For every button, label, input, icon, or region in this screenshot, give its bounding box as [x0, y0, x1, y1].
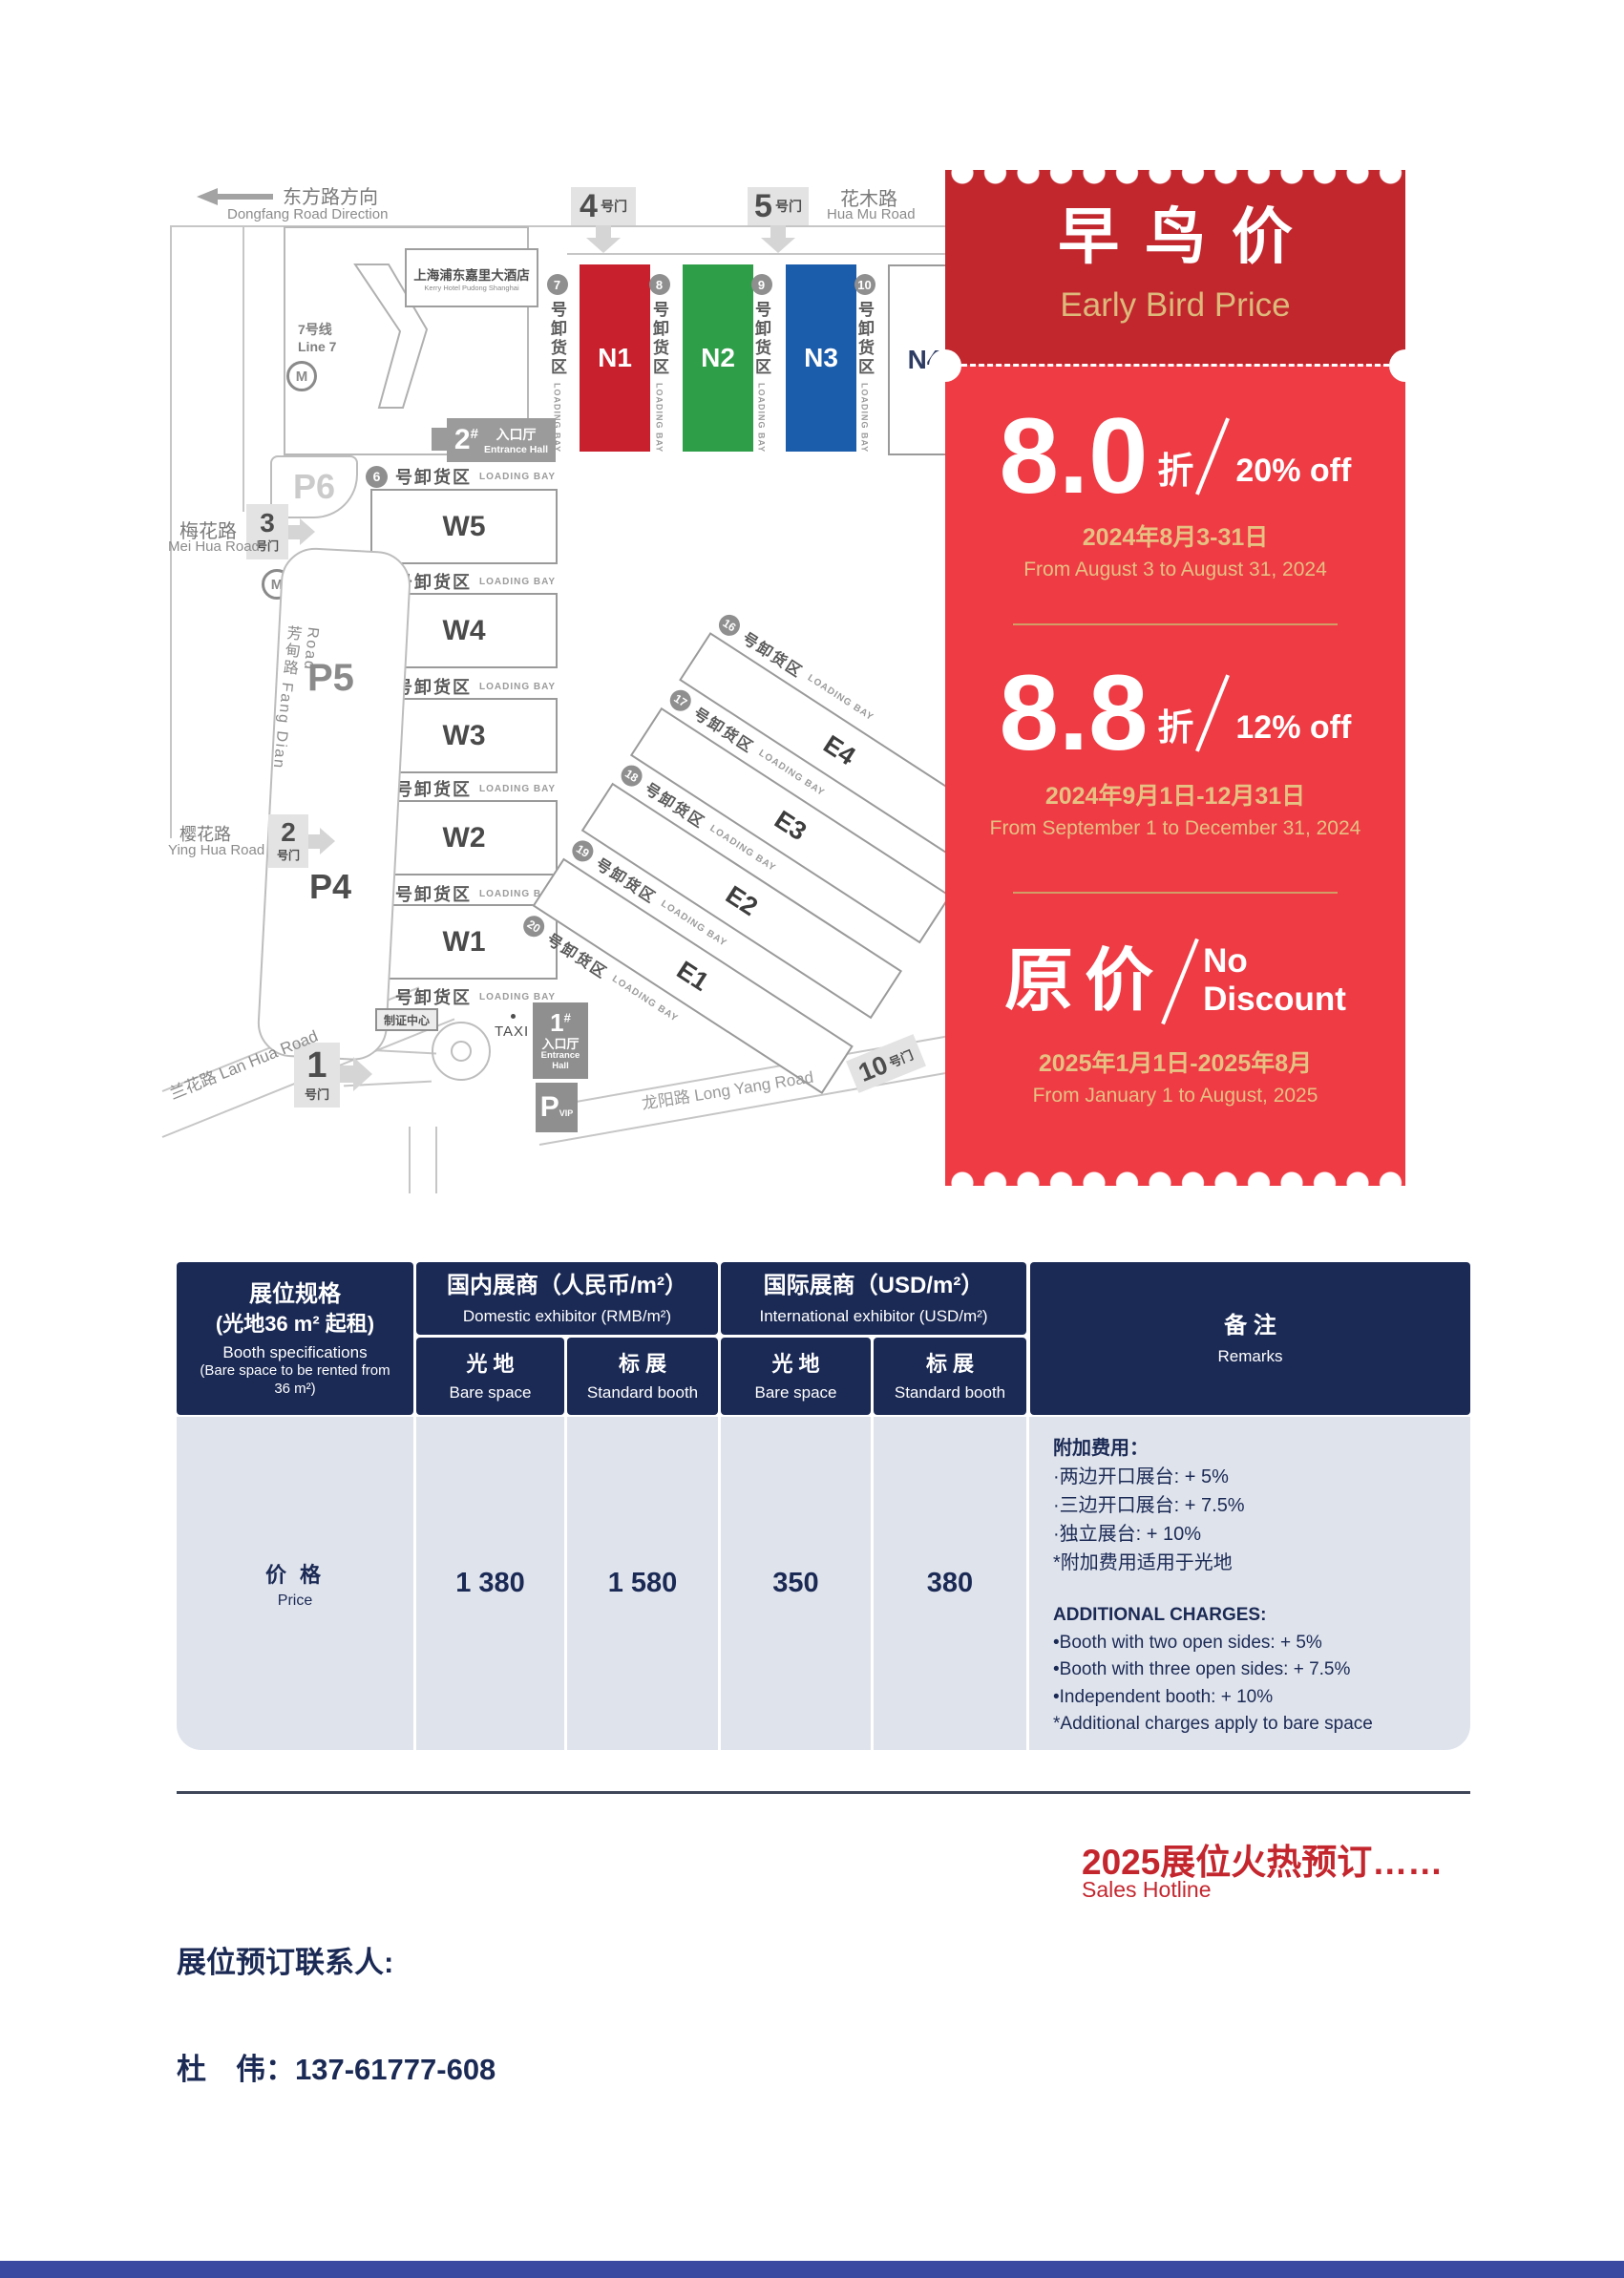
entrance-2-label-en: Entrance Hall: [484, 444, 548, 455]
remarks-header-en: Remarks: [1217, 1346, 1282, 1366]
remarks-cn-item: *附加费用适用于光地: [1053, 1549, 1454, 1577]
gate-1-number: 1: [306, 1047, 327, 1084]
bay-6-label-en: LOADING BAY: [479, 472, 556, 482]
loading-bay-8: 8 号卸货区 LOADING BAY: [647, 274, 671, 453]
price-international-bare: 350: [721, 1417, 871, 1750]
hotel-name-en: Kerry Hotel Pudong Shanghai: [424, 284, 518, 292]
hall-e4-label: E4: [818, 729, 861, 771]
tier-1-rate-suffix: 折: [1157, 441, 1193, 494]
tier-2-rate-suffix: 折: [1157, 698, 1193, 750]
bay-10-badge: 10: [854, 274, 875, 295]
hotel-label-box: 上海浦东嘉里大酒店 Kerry Hotel Pudong Shanghai: [405, 248, 538, 307]
hall-w3-label: W3: [443, 720, 486, 752]
gate-5: 5 号门: [748, 187, 809, 225]
bay-17-badge: 17: [666, 686, 695, 715]
hall-n2: N2: [683, 264, 753, 452]
ticket-title-cn: 早鸟价: [945, 170, 1431, 267]
price-international-standard: 380: [874, 1417, 1026, 1750]
gate-4-arrow-icon: [586, 238, 621, 253]
tier-1: 8.0 折 20% off 2024年8月3-31日 From August 3…: [945, 365, 1405, 581]
parking-vip-p: P: [540, 1091, 559, 1124]
entrance-hall-1: 1# 入口厅 Entrance Hall: [533, 1002, 588, 1079]
tier-2-date-en: From September 1 to December 31, 2024: [945, 817, 1405, 840]
tier-1-slash: [1195, 418, 1230, 496]
loading-bay-9: 9 号卸货区 LOADING BAY: [749, 274, 773, 453]
gate-3-number: 3: [260, 510, 275, 537]
hall-w2-label: W2: [443, 822, 486, 854]
hall-n1-label: N1: [598, 343, 632, 373]
ticket-header: 早鸟价 Early Bird Price: [945, 170, 1405, 365]
ticket-divider-2: [1013, 892, 1338, 894]
entrance-1-num: 1: [550, 1008, 563, 1037]
entrance-1-number: 1#: [550, 1009, 571, 1038]
booth-spec-en-1: Booth specifications: [222, 1342, 367, 1362]
footer-bar: [0, 2261, 1624, 2278]
price-value: 1 380: [455, 1568, 525, 1599]
hall-w5: W5: [370, 489, 558, 564]
remarks-en-item: •Independent booth: + 10%: [1053, 1684, 1454, 1712]
bay-8-badge: 8: [649, 274, 670, 295]
tier-2-discount: 12% off: [1235, 709, 1351, 747]
metro-logo-icon: M: [286, 361, 317, 391]
dongfang-road-label-en: Dongfang Road Direction: [227, 206, 388, 222]
parking-p6-label: P6: [293, 467, 335, 507]
tier-2-date-cn: 2024年9月1日-12月31日: [945, 777, 1405, 812]
booth-spec-en-2: (Bare space to be rented from 36 m²): [190, 1362, 400, 1399]
entrance-1-label-en: Entrance Hall: [533, 1051, 588, 1072]
price-table: 展位规格 (光地36 m² 起租) Booth specifications (…: [177, 1262, 1470, 1750]
road-line: [435, 1127, 437, 1193]
bay-16-badge: 16: [715, 611, 744, 640]
price-value: 1 580: [608, 1568, 678, 1599]
remarks-content: 附加费用： ·两边开口展台: + 5% ·三边开口展台: + 7.5% ·独立展…: [1053, 1434, 1454, 1739]
ticket-scallop-bottom: [946, 1171, 1404, 1194]
left-arrow-shaft: [218, 194, 273, 200]
bay-2-label-cn: 号卸货区: [395, 881, 472, 906]
domestic-standard-header: 标 展 Standard booth: [567, 1338, 718, 1415]
domestic-bare-cn: 光 地: [466, 1350, 514, 1379]
parking-vip-sub: VIP: [559, 1108, 574, 1118]
entrance-2-number: 2#: [454, 426, 478, 454]
tier-3-slash: [1161, 938, 1199, 1024]
remarks-en-item: *Additional charges apply to bare space: [1053, 1711, 1454, 1739]
international-bare-header: 光 地 Bare space: [721, 1338, 871, 1415]
entrance-2-num: 2: [454, 424, 471, 455]
domestic-standard-cn: 标 展: [619, 1350, 666, 1379]
gate-1-arrow-icon: [353, 1057, 372, 1091]
meihua-road-label-en: Mei Hua Road: [168, 538, 260, 555]
entrance-1-label-cn: 入口厅: [541, 1038, 579, 1052]
bay-4-label-en: LOADING BAY: [479, 682, 556, 692]
remarks-cn-item: ·独立展台: + 10%: [1053, 1520, 1454, 1549]
early-bird-ticket: 早鸟价 Early Bird Price 8.0 折 20% off 2024年…: [945, 170, 1405, 1186]
group-international-header: 国际展商（USD/m²） International exhibitor (US…: [721, 1262, 1026, 1335]
remarks-en-title: ADDITIONAL CHARGES:: [1053, 1602, 1454, 1630]
domestic-header-cn: 国内展商（人民币/m²）: [447, 1271, 687, 1301]
tier-3-rate: 原价: [1004, 947, 1165, 1016]
tier-1-rate: 8.0: [1000, 409, 1149, 505]
road-line: [243, 225, 244, 512]
bay-4-label-cn: 号卸货区: [395, 674, 472, 699]
gate-5-suffix: 号门: [775, 197, 802, 216]
bay-1-label-en: LOADING BAY: [479, 992, 556, 1002]
remarks-en-item: •Booth with three open sides: + 7.5%: [1053, 1656, 1454, 1684]
tier-1-date-cn: 2024年8月3-31日: [945, 518, 1405, 553]
tier-3: 原价 No Discount 2025年1月1日-2025年8月 From Ja…: [945, 936, 1405, 1107]
dongfang-road-label-cn: 东方路方向: [283, 181, 378, 209]
price-domestic-bare: 1 380: [416, 1417, 564, 1750]
bay-3-label-en: LOADING BAY: [479, 784, 556, 794]
gate-4-arrow-stem: [596, 225, 611, 238]
loading-bay-10: 10 号卸货区 LOADING BAY: [853, 274, 876, 453]
bay-19-badge: 19: [568, 836, 597, 865]
road-line: [170, 225, 172, 838]
bay-9-label-cn: 号卸货区: [749, 301, 773, 377]
column-separator: [1026, 1417, 1029, 1750]
gate-2-arrow-icon: [320, 828, 335, 854]
bay-10-label-en: LOADING BAY: [860, 383, 870, 453]
ticket-divider-1: [1013, 623, 1338, 625]
bay-8-label-en: LOADING BAY: [655, 383, 664, 453]
remarks-cn-title: 附加费用：: [1053, 1434, 1454, 1463]
remarks-header: 备 注 Remarks: [1030, 1262, 1470, 1415]
ticket-dashed-line: [953, 364, 1398, 367]
gate-4-number: 4: [580, 190, 598, 222]
tier-1-date-en: From August 3 to August 31, 2024: [945, 559, 1405, 581]
tier-3-date-cn: 2025年1月1日-2025年8月: [945, 1044, 1405, 1079]
gate-2-number: 2: [281, 819, 296, 846]
ticket-notch-right: [1389, 349, 1422, 382]
bay-1-label-cn: 号卸货区: [395, 984, 472, 1009]
hall-w4-label: W4: [443, 615, 486, 647]
international-bare-cn: 光 地: [771, 1350, 819, 1379]
parking-p5-label: P5: [307, 657, 354, 700]
bay-6-label-cn: 号卸货区: [395, 464, 472, 489]
metro-line7-cn: 7号线: [298, 321, 336, 338]
bay-3-label-cn: 号卸货区: [395, 776, 472, 801]
ticket-body: 8.0 折 20% off 2024年8月3-31日 From August 3…: [945, 365, 1405, 1186]
hall-e3-label: E3: [770, 805, 812, 847]
bay-9-label-en: LOADING BAY: [757, 383, 767, 453]
remarks-en-item: •Booth with two open sides: + 5%: [1053, 1630, 1454, 1657]
gate-5-arrow-icon: [761, 238, 795, 253]
col-booth-spec-header: 展位规格 (光地36 m² 起租) Booth specifications (…: [177, 1262, 413, 1415]
bay-8-label-cn: 号卸货区: [647, 301, 671, 377]
hall-w1-label: W1: [443, 926, 486, 959]
domestic-standard-en: Standard booth: [587, 1382, 698, 1403]
ticket-notch-left: [929, 349, 961, 382]
parking-p4-label: P4: [309, 867, 351, 907]
price-value: 380: [927, 1568, 973, 1599]
gate-10-suffix: 号门: [886, 1044, 916, 1070]
bay-18-badge: 18: [617, 761, 645, 790]
booth-spec-cn-1: 展位规格: [249, 1279, 341, 1310]
gate-5-arrow-stem: [770, 225, 786, 238]
left-arrow-icon: [197, 188, 218, 205]
price-label-en: Price: [278, 1592, 312, 1610]
road-line: [567, 253, 945, 255]
roundabout-center: [451, 1041, 472, 1062]
loading-bay-1: 1 号卸货区 LOADING BAY: [366, 984, 556, 1009]
entrance-hall-2: 2# 入口厅 Entrance Hall: [447, 418, 556, 462]
tier-2-rate: 8.8: [1000, 665, 1149, 762]
international-standard-en: Standard booth: [895, 1382, 1005, 1403]
road-line: [409, 1127, 411, 1193]
bay-10-label-cn: 号卸货区: [853, 301, 876, 377]
footer-divider: [177, 1791, 1470, 1794]
parking-vip: P VIP: [536, 1083, 578, 1132]
hall-n2-label: N2: [701, 343, 735, 373]
price-label-cn: 价 格: [265, 1558, 325, 1589]
bay-7-badge: 7: [547, 274, 568, 295]
sales-hotline-label: Sales Hotline: [1082, 1877, 1212, 1903]
remarks-cn-item: ·两边开口展台: + 5%: [1053, 1463, 1454, 1491]
international-standard-header: 标 展 Standard booth: [874, 1338, 1026, 1415]
taxi-dot: [511, 1014, 516, 1019]
hotel-name-cn: 上海浦东嘉里大酒店: [413, 264, 530, 284]
taxi-label: TAXI: [495, 1023, 529, 1040]
huamu-road-label-en: Hua Mu Road: [827, 206, 916, 222]
flyer-page: 东方路方向 Dongfang Road Direction 4 号门 5 号门 …: [0, 0, 1624, 2278]
gate-5-number: 5: [754, 190, 772, 222]
hall-n3-label: N3: [804, 343, 838, 373]
gate-1-arrow-stem: [340, 1065, 353, 1083]
hall-n3: N3: [786, 264, 856, 452]
hall-e2-label: E2: [721, 879, 764, 921]
gate-2-arrow-stem: [308, 834, 320, 849]
domestic-header-en: Domestic exhibitor (RMB/m²): [463, 1306, 671, 1326]
tier-3-date-en: From January 1 to August, 2025: [945, 1085, 1405, 1107]
loading-bay-6: 6 号卸货区 LOADING BAY: [366, 464, 556, 489]
tier-2-slash: [1195, 675, 1230, 752]
east-halls-cluster: 16 号卸货区 LOADING BAY E4 17 号卸货区 LOADING B…: [528, 606, 1017, 1101]
gate-3-arrow-icon: [300, 518, 315, 545]
gate-2: 2 号门: [268, 814, 308, 868]
tier-3-discount-line1: No: [1203, 942, 1346, 980]
metro-line7-label: 7号线 Line 7: [298, 321, 336, 355]
gate-4-suffix: 号门: [601, 197, 627, 216]
price-row-label: 价 格 Price: [177, 1417, 413, 1750]
booth-spec-cn-2: (光地36 m² 起租): [216, 1310, 374, 1339]
remarks-cn-item: ·三边开口展台: + 7.5%: [1053, 1491, 1454, 1520]
gate-4: 4 号门: [571, 187, 636, 225]
international-standard-cn: 标 展: [926, 1350, 974, 1379]
international-bare-en: Bare space: [755, 1382, 837, 1403]
price-value: 350: [772, 1568, 818, 1599]
metro-line7-en: Line 7: [298, 338, 336, 355]
tier-2: 8.8 折 12% off 2024年9月1日-12月31日 From Sept…: [945, 665, 1405, 840]
hall-n1: N1: [580, 264, 650, 452]
group-domestic-header: 国内展商（人民币/m²） Domestic exhibitor (RMB/m²): [416, 1262, 718, 1335]
domestic-bare-header: 光 地 Bare space: [416, 1338, 564, 1415]
ticket-scallop-top: [946, 161, 1404, 184]
ticket-title-en: Early Bird Price: [945, 286, 1405, 325]
gate-10-number: 10: [855, 1051, 892, 1086]
hall-e1-label: E1: [671, 955, 714, 997]
domestic-bare-en: Bare space: [450, 1382, 532, 1403]
bay-7-label-cn: 号卸货区: [545, 301, 569, 377]
gate-3-arrow-stem: [288, 525, 300, 539]
tier-3-discount: No Discount: [1203, 942, 1346, 1017]
price-domestic-standard: 1 580: [567, 1417, 718, 1750]
tier-3-discount-line2: Discount: [1203, 981, 1346, 1018]
contact-label: 展位预订联系人:: [177, 1938, 393, 1981]
international-header-en: International exhibitor (USD/m²): [759, 1306, 987, 1326]
contact-phone: 杜 伟：137-61777-608: [177, 2045, 496, 2088]
bay-5-label-en: LOADING BAY: [479, 577, 556, 587]
yinghua-road-label-en: Ying Hua Road: [168, 842, 264, 858]
bay-6-badge: 6: [366, 466, 388, 488]
tier-1-discount: 20% off: [1235, 453, 1351, 490]
hall-w5-label: W5: [443, 511, 486, 543]
remarks-header-cn: 备 注: [1224, 1311, 1276, 1341]
gate-1-suffix: 号门: [305, 1085, 329, 1103]
bay-9-badge: 9: [751, 274, 772, 295]
entrance-2-label-cn: 入口厅: [484, 425, 548, 444]
international-header-cn: 国际展商（USD/m²）: [764, 1271, 984, 1301]
badge-center-box: 制证中心: [375, 1008, 438, 1031]
entrance-1-hash: #: [564, 1010, 571, 1024]
gate-2-suffix: 号门: [277, 847, 300, 863]
entrance-2-hash: #: [471, 426, 478, 442]
